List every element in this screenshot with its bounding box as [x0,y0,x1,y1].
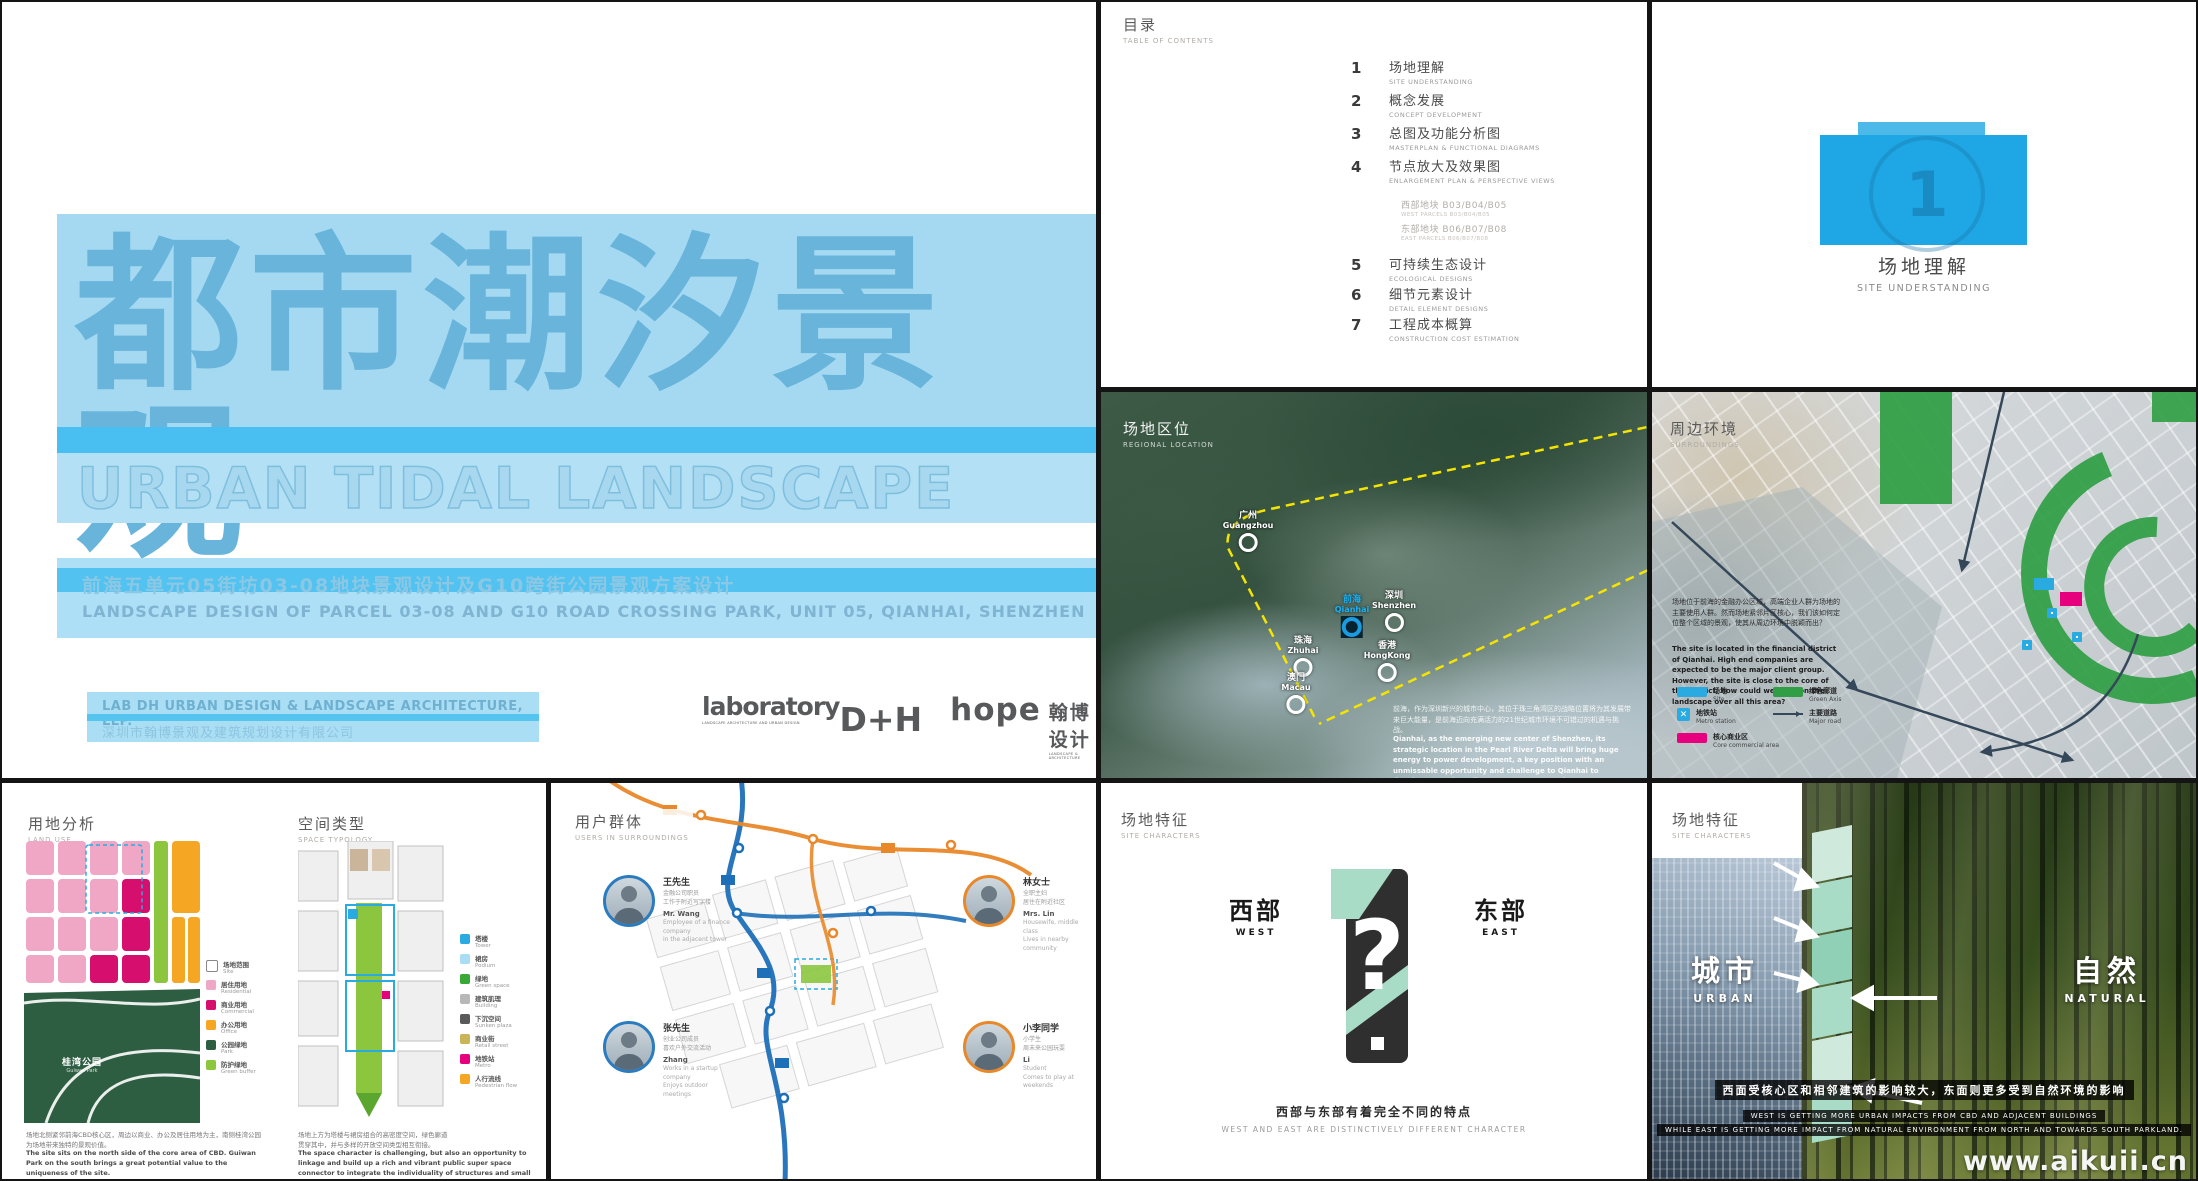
toc-item: 3 [1351,124,1361,143]
toc-item: 1 [1351,58,1361,77]
legend-en: Major road [1809,718,1841,725]
city-label-en: Zhuhai [1287,646,1318,655]
user-desc-en: Housewife, middle class Lives in nearby … [1023,919,1093,953]
landuse-caption-zh: 场地北侧紧邻前海CBD核心区，周边以商业、办公及居住用地为主，南侧桂湾公园为场地… [26,1131,264,1151]
landuse-heading-zh: 用地分析 [28,813,96,834]
urbannature-heading-zh: 场地特征 [1672,809,1752,830]
cover-firm-strip [87,714,539,721]
city-label-zh: 珠海 [1287,633,1318,646]
toc-heading: 目录 TABLE OF CONTENTS [1123,14,1214,45]
park-label-zh: 桂湾公园 [62,1055,102,1068]
surroundings-caption-zh: 场地位于前海的金融办公区域，高端企业人群为场地的主要使用人群。然而场地紧邻片区核… [1672,597,1844,629]
slide-regional-location: 场地区位 REGIONAL LOCATION 广州 Guangzhou 深圳 S… [1101,392,1647,778]
surroundings-heading-zh: 周边环境 [1670,418,1740,439]
site-watermark: www.aikuii.cn [1963,1146,2188,1177]
toc-item-zh: 工程成本概算 [1389,314,1520,333]
toc-item: 6 [1351,285,1361,304]
podium-block [372,849,390,871]
typology-caption-en: The space character is challenging, but … [298,1149,533,1179]
legend-en: Metro [475,1063,495,1069]
toc-item: 7 [1351,315,1361,334]
legend-en: Site [223,969,249,975]
office-blocks [172,841,200,983]
city-marker-guangzhou: 广州 Guangzhou [1223,508,1274,552]
labdh-logo-tagline: LANDSCAPE ARCHITECTURE AND URBAN DESIGN [702,721,839,725]
legend-zh: 人行流线 [475,1073,517,1083]
toc-item: 场地理解SITE UNDERSTANDING [1389,57,1473,86]
slide-cover: 都市潮汐景观 URBAN TIDAL LANDSCAPE 前海五单元05街坊03… [2,2,1096,778]
toc-item-zh: 节点放大及效果图 [1389,156,1555,175]
toc-subitem: 西部地块 B03/B04/B05WEST PARCELS B03/B04/B05 [1401,198,1507,218]
caption-text: 西面受核心区和相邻建筑的影响较大，东面则更多受到自然环境的影响 [1715,1080,2134,1100]
chapter-number: 1 [1905,158,1948,231]
landuse-legend-item: 居住用地Residential [206,979,251,995]
legend-major-road: 主要道路Major road [1773,708,1841,725]
toc-item-number: 3 [1351,125,1361,143]
legend-en: Podium [475,963,495,969]
user-desc-en: Employee of a finance company in the adj… [663,919,733,944]
toc-item: 4 [1351,157,1361,176]
cover-title-en: URBAN TIDAL LANDSCAPE [77,461,955,518]
city-label-en: Shenzhen [1372,601,1416,610]
westeast-caption-zh: 西部与东部有着完全不同的特点 [1101,1103,1647,1120]
toc-item-en: ENLARGEMENT PLAN & PERSPECTIVE VIEWS [1389,177,1555,185]
user-desc-en: Student Comes to play at weekends [1023,1065,1093,1090]
user-name-zh: 小李同学 [1023,1021,1093,1034]
east-label: 东部 EAST [1456,891,1546,938]
regional-heading-zh: 场地区位 [1123,418,1214,439]
westeast-heading-en: SITE CHARACTERS [1121,832,1201,840]
westeast-caption: 西部与东部有着完全不同的特点 WEST AND EAST ARE DISTINC… [1101,1103,1647,1134]
legend-en: Retail street [475,1043,508,1049]
landuse-caption-en: The site sits on the north side of the c… [26,1149,264,1178]
major-road-line-icon [1773,713,1803,715]
toc-item-number: 7 [1351,316,1361,334]
presentation-contact-sheet: 都市潮汐景观 URBAN TIDAL LANDSCAPE 前海五单元05街坊03… [0,0,2198,1181]
slide-toc: 目录 TABLE OF CONTENTS 1 场地理解SITE UNDERSTA… [1101,2,1647,387]
toc-heading-en: TABLE OF CONTENTS [1123,37,1214,45]
user-desc-zh: 小学生 周末来公园玩耍 [1023,1036,1093,1053]
legend-site: 场地Site [1677,686,1727,703]
city-ring-icon [1385,613,1404,632]
city-label-en: HongKong [1364,651,1411,660]
caption-text: WHILE EAST IS GETTING MORE IMPACT FROM N… [1657,1124,2191,1136]
toc-item-number: 6 [1351,286,1361,304]
city-label-zh: 香港 [1364,638,1411,651]
user-card: 小李同学 小学生 周末来公园玩耍 Li Student Comes to pla… [963,1021,1093,1091]
west-label: 西部 WEST [1211,891,1301,938]
toc-subitem-zh: 东部地块 B06/B07/B08 [1401,222,1507,235]
typology-heading-zh: 空间类型 [298,813,373,834]
legend-en: Metro station [1696,718,1736,725]
legend-zh: 场地范围 [223,959,249,969]
slide-landuse-typology: 用地分析 LAND USE [2,783,546,1179]
hope-logo-word: hope [950,692,1041,728]
toc-subitem-en: WEST PARCELS B03/B04/B05 [1401,212,1507,218]
typology-legend-item: 建筑肌理Building [460,993,501,1009]
toc-item-en: CONSTRUCTION COST ESTIMATION [1389,335,1520,343]
toc-item-zh: 细节元素设计 [1389,284,1488,303]
regional-heading-en: REGIONAL LOCATION [1123,441,1214,449]
typology-heading: 空间类型 SPACE TYPOLOGY [298,813,373,844]
city-marker-macau: 澳门 Macau [1281,670,1310,714]
toc-item-en: MASTERPLAN & FUNCTIONAL DIAGRAMS [1389,144,1540,152]
user-desc-zh: 全职主妇 居住在附近社区 [1023,890,1093,907]
legend-zh: 地铁站 [475,1053,495,1063]
typology-legend-item: 商业街Retail street [460,1033,508,1049]
city-label-zh: 广州 [1223,508,1274,521]
toc-heading-zh: 目录 [1123,14,1214,35]
toc-subitem-zh: 西部地块 B03/B04/B05 [1401,198,1507,211]
tower-marker [348,909,358,919]
green-axis-swatch [1773,687,1803,697]
legend-zh: 绿地 [475,973,510,983]
legend-green-axis: 绿色廊道Green Axis [1773,686,1842,703]
toc-subitem: 东部地块 B06/B07/B08EAST PARCELS B06/B07/B08 [1401,222,1507,242]
user-card: 张先生 创业公司成员 喜欢户外交流活动 Zhang Works in a sta… [603,1021,733,1099]
site-swatch [1677,687,1707,697]
core-commercial-marker [2060,592,2082,606]
west-label-zh: 西部 [1211,891,1301,926]
legend-zh: 绿色廊道 [1809,686,1842,696]
toc-item: 总图及功能分析图MASTERPLAN & FUNCTIONAL DIAGRAMS [1389,123,1540,152]
legend-zh: 居住用地 [221,979,251,989]
typology-legend-item: 塔楼Tower [460,933,491,949]
user-name-en: Mr. Wang [663,910,733,918]
green-axis-band [356,903,382,1093]
qianhai-marker-icon [1341,616,1363,638]
green-corridor-north [1880,392,1952,504]
toc-item: 工程成本概算CONSTRUCTION COST ESTIMATION [1389,314,1520,343]
user-name-en: Mrs. Lin [1023,910,1093,918]
toc-item-number: 1 [1351,59,1361,77]
green-strip [154,841,168,983]
toc-item: 2 [1351,91,1361,110]
urban-label-en: URBAN [1670,992,1780,1005]
toc-subitem-en: EAST PARCELS B06/B07/B08 [1401,236,1507,242]
green-patch [2152,392,2196,422]
chapter-title: 场地理解 SITE UNDERSTANDING [1652,252,2196,294]
labdh-logo: laboratory LANDSCAPE ARCHITECTURE AND UR… [702,692,922,739]
westeast-heading: 场地特征 SITE CHARACTERS [1121,809,1201,840]
landuse-legend-item: 办公用地Office [206,1019,247,1035]
legend-en: Tower [475,943,491,949]
cover-accent-strip [57,427,1096,453]
legend-zh: 防护绿地 [221,1059,256,1069]
toc-item: 可持续生态设计ECOLOGICAL DESIGNS [1389,254,1487,283]
legend-zh: 地铁站 [1696,708,1736,718]
legend-en: Core commercial area [1713,742,1779,749]
legend-zh: 办公用地 [221,1019,247,1029]
natural-label: 自然 NATURAL [2042,948,2172,1005]
labdh-logo-word: laboratory [702,692,839,721]
toc-item: 5 [1351,255,1361,274]
landuse-legend-item: 防护绿地Green buffer [206,1059,256,1075]
park-label-en: Guiwan Park [62,1068,102,1074]
city-ring-icon [1239,533,1258,552]
legend-en: Commercial [221,1009,254,1015]
landuse-legend-item: 场地范围Site [206,959,249,975]
toc-item-en: SITE UNDERSTANDING [1389,78,1473,86]
slide-users: 用户群体 USERS IN SURROUNDINGS 王先生 金融公司职员 工作… [551,783,1096,1179]
legend-zh: 核心商业区 [1713,732,1779,742]
cover-firm-zh: 深圳市翰博景观及建筑规划设计有限公司 [102,722,354,741]
chapter-number-circle: 1 [1869,136,1985,252]
labdh-logo-dh: D+H [839,700,922,739]
toc-item-number: 4 [1351,158,1361,176]
toc-item: 节点放大及效果图ENLARGEMENT PLAN & PERSPECTIVE V… [1389,156,1555,185]
city-label-en: Guangzhou [1223,521,1274,530]
site-marker-qianhai: 前海 Qianhai [1335,592,1369,638]
svg-text:?: ? [1349,900,1405,1012]
legend-zh: 塔楼 [475,933,491,943]
legend-en: Green buffer [221,1069,256,1075]
legend-zh: 下沉空间 [475,1013,512,1023]
city-ring-icon [1286,695,1305,714]
user-card: 王先生 金融公司职员 工作于附近写字楼 Mr. Wang Employee of… [603,875,733,945]
city-label-en: Macau [1281,683,1310,692]
user-desc-zh: 创业公司成员 喜欢户外交流活动 [663,1036,733,1053]
legend-zh: 裙房 [475,953,495,963]
toc-item-zh: 概念发展 [1389,90,1482,109]
east-label-zh: 东部 [1456,891,1546,926]
park-label: 桂湾公园 Guiwan Park [62,1055,102,1074]
site-parcel-marker [2034,578,2054,590]
urbannature-caption-zh: 西面受核心区和相邻建筑的影响较大，东面则更多受到自然环境的影响 [1652,1079,2196,1100]
typology-legend-item: 地铁站Metro [460,1053,495,1069]
legend-en: Green space [475,983,510,989]
urbannature-heading-en: SITE CHARACTERS [1672,832,1752,840]
hope-logo-zh: 翰博设计 [1049,698,1096,752]
west-label-en: WEST [1211,928,1301,938]
cover-subtitle-band: 前海五单元05街坊03-08地块景观设计及G10跨街公园景观方案设计 LANDS… [57,558,1096,638]
legend-zh: 商业用地 [221,999,254,1009]
surroundings-heading-en: SURROUNDINGS [1670,441,1740,449]
cover-subtitle-zh: 前海五单元05街坊03-08地块景观设计及G10跨街公园景观方案设计 [82,571,735,598]
toc-item-zh: 场地理解 [1389,57,1473,76]
urban-label: 城市 URBAN [1670,948,1780,1005]
user-desc-en: Works in a startup company Enjoys outdoo… [663,1065,733,1099]
legend-en: Green Axis [1809,696,1842,703]
green-ring-outer [2034,464,2196,691]
legend-en: Park [221,1049,247,1055]
legend-en: Office [221,1029,247,1035]
user-name-en: Li [1023,1056,1093,1064]
landuse-map [24,841,200,1123]
landuse-legend-item: 商业用地Commercial [206,999,254,1015]
hope-logo: hope 翰博设计 LANDSCAPE & ARCHITECTURE [950,692,1096,760]
users-heading-en: USERS IN SURROUNDINGS [575,834,689,842]
user-desc-zh: 金融公司职员 工作于附近写字楼 [663,890,733,907]
user-avatar-icon [963,875,1015,927]
user-avatar-icon [603,1021,655,1073]
cover-firm-band: LAB DH URBAN DESIGN & LANDSCAPE ARCHITEC… [87,692,539,742]
site-label-en: Qianhai [1335,605,1369,614]
city-ring-icon [1378,663,1397,682]
landuse-legend-item: 公园绿地Park [206,1039,247,1055]
user-avatar-icon [603,875,655,927]
toc-item: 细节元素设计DETAIL ELEMENT DESIGNS [1389,284,1488,313]
cover-title-band: 都市潮汐景观 [57,214,1096,427]
green-axis-arrow [356,1093,382,1117]
regional-caption-zh: 前海，作为深圳新兴的城市中心，其位于珠三角湾区的战略位置将为其发展带来巨大能量，… [1393,704,1631,736]
urbannature-caption-en2: WHILE EAST IS GETTING MORE IMPACT FROM N… [1652,1117,2196,1136]
city-marker-hongkong: 香港 HongKong [1364,638,1411,682]
toc-item-zh: 可持续生态设计 [1389,254,1487,273]
westeast-heading-zh: 场地特征 [1121,809,1201,830]
site-label-zh: 前海 [1335,592,1369,605]
legend-en: Residential [221,989,251,995]
urbannature-heading: 场地特征 SITE CHARACTERS [1672,809,1752,840]
question-column-graphic: ? [1331,861,1426,1071]
cover-subtitle-en: LANDSCAPE DESIGN OF PARCEL 03-08 AND G10… [82,602,1086,621]
legend-zh: 建筑肌理 [475,993,501,1003]
user-name-en: Zhang [663,1056,733,1064]
westeast-caption-en: WEST AND EAST ARE DISTINCTIVELY DIFFEREN… [1101,1125,1647,1134]
green-ring-inner [2094,527,2196,647]
user-name-zh: 王先生 [663,875,733,888]
core-commercial-swatch [1677,733,1707,743]
typology-legend-item: 裙房Podium [460,953,495,969]
chapter-title-en: SITE UNDERSTANDING [1652,283,2196,294]
typology-legend-item: 下沉空间Sunken plaza [460,1013,512,1029]
toc-item-zh: 总图及功能分析图 [1389,123,1540,142]
chapter-title-zh: 场地理解 [1652,252,2196,279]
metro-station-icon: ✕ [1677,708,1690,721]
typology-diagram [298,841,448,1123]
site-green-parcel [801,965,831,983]
flow-arrows [1774,863,1937,1103]
city-label-zh: 深圳 [1372,588,1416,601]
legend-zh: 公园绿地 [221,1039,247,1049]
legend-zh: 场地 [1713,686,1727,696]
typology-legend-item: 绿地Green space [460,973,510,989]
legend-en: Site [1713,696,1727,703]
landuse-heading: 用地分析 LAND USE [28,813,96,844]
natural-label-zh: 自然 [2042,948,2172,990]
slide-west-east: 场地特征 SITE CHARACTERS ? 西部 WEST 东部 EAST 西… [1101,783,1647,1179]
podium-block [350,849,368,871]
toc-item-en: CONCEPT DEVELOPMENT [1389,111,1482,119]
typology-legend-item: 人行流线Pedestrian flow [460,1073,517,1089]
legend-en: Sunken plaza [475,1023,512,1029]
legend-en: Building [475,1003,501,1009]
toc-item-en: DETAIL ELEMENT DESIGNS [1389,305,1488,313]
road-arrow [1962,392,2004,570]
toc-item: 概念发展CONCEPT DEVELOPMENT [1389,90,1482,119]
hope-logo-tagline: LANDSCAPE & ARCHITECTURE [1049,752,1096,760]
toc-item-number: 5 [1351,256,1361,274]
urban-label-zh: 城市 [1670,948,1780,990]
regional-heading: 场地区位 REGIONAL LOCATION [1123,418,1214,449]
natural-label-en: NATURAL [2042,992,2172,1005]
legend-zh: 主要道路 [1809,708,1841,718]
toc-item-en: ECOLOGICAL DESIGNS [1389,275,1487,283]
surroundings-heading: 周边环境 SURROUNDINGS [1670,418,1740,449]
east-label-en: EAST [1456,928,1546,938]
slide-surroundings: 周边环境 SURROUNDINGS 场地位于前海的金融办公区域，高端企业人群为场… [1652,392,2196,778]
slide-urban-natural: 场地特征 SITE CHARACTERS 城市 URBAN 自然 NATURAL… [1652,783,2196,1179]
city-marker-shenzhen: 深圳 Shenzhen [1372,588,1416,632]
slide-chapter-1: 1 场地理解 SITE UNDERSTANDING [1652,2,2196,387]
user-name-zh: 张先生 [663,1021,733,1034]
user-name-zh: 林女士 [1023,875,1093,888]
regional-caption-en: Qianhai, as the emerging new center of S… [1393,734,1631,778]
user-avatar-icon [963,1021,1015,1073]
legend-metro-station: ✕ 地铁站Metro station [1677,708,1736,725]
user-card: 林女士 全职主妇 居住在附近社区 Mrs. Lin Housewife, mid… [963,875,1093,953]
cover-entitle-band: URBAN TIDAL LANDSCAPE [57,453,1096,523]
city-label-zh: 澳门 [1281,670,1310,683]
legend-zh: 商业街 [475,1033,508,1043]
metro-marker [382,991,390,999]
users-heading-zh: 用户群体 [575,811,689,832]
typology-caption-zh: 场地上方为塔楼与裙房组合的高密度空间，绿色廊道贯穿其中，并与多样的开放空间类型相… [298,1131,448,1151]
legend-en: Pedestrian flow [475,1083,517,1089]
users-heading: 用户群体 USERS IN SURROUNDINGS [571,809,693,844]
toc-item-number: 2 [1351,92,1361,110]
cover-logos: laboratory LANDSCAPE ARCHITECTURE AND UR… [702,692,1096,760]
legend-core-commercial: 核心商业区Core commercial area [1677,732,1779,749]
